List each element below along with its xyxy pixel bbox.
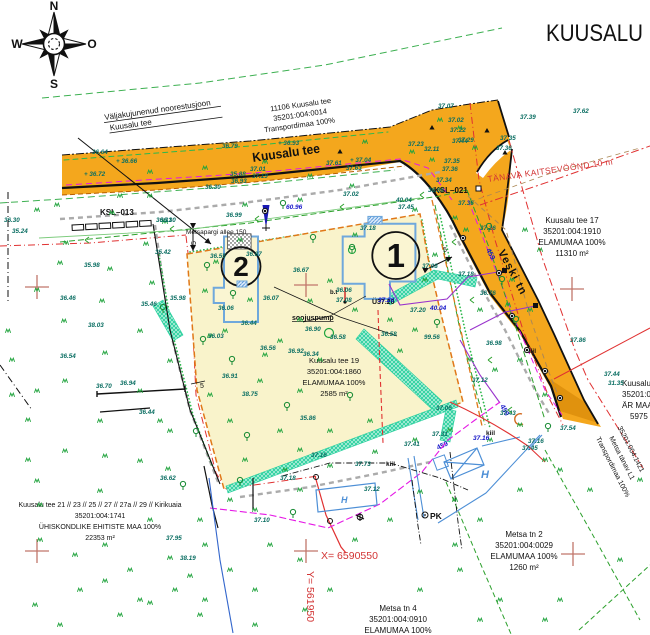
svg-text:S: S: [50, 77, 58, 91]
svg-text:37.16: 37.16: [473, 435, 490, 442]
svg-text:37.86: 37.86: [570, 337, 586, 344]
svg-text:37.22: 37.22: [450, 127, 466, 134]
svg-text:37.45: 37.45: [398, 204, 414, 211]
svg-text:W: W: [11, 37, 23, 51]
svg-text:36.76: 36.76: [480, 290, 496, 297]
svg-text:+ 36.93: + 36.93: [278, 140, 300, 147]
svg-text:37.23: 37.23: [408, 141, 424, 148]
svg-text:5: 5: [191, 241, 198, 245]
svg-text:36.91: 36.91: [222, 373, 238, 380]
svg-text:36.56: 36.56: [260, 345, 276, 352]
svg-text:35201:004: 35201:004: [622, 390, 650, 399]
svg-text:ÄR MAA 1: ÄR MAA 1: [622, 401, 650, 410]
svg-text:37.19: 37.19: [252, 173, 268, 180]
svg-text:37.73: 37.73: [355, 461, 371, 468]
svg-text:36.94: 36.94: [120, 380, 136, 387]
svg-text:36.93: 36.93: [231, 178, 247, 185]
svg-text:36.87: 36.87: [246, 251, 262, 258]
svg-text:H: H: [481, 469, 490, 481]
svg-text:11310 m²: 11310 m²: [555, 249, 589, 258]
svg-text:KSL–013: KSL–013: [100, 208, 134, 217]
svg-text:N: N: [50, 0, 59, 13]
svg-text:+ 37.04: + 37.04: [350, 157, 372, 164]
svg-text:37.08: 37.08: [422, 263, 438, 270]
svg-text:37.35: 37.35: [500, 135, 516, 142]
svg-text:2585 m²: 2585 m²: [320, 389, 348, 398]
svg-text:Y= 561950: Y= 561950: [304, 571, 316, 622]
svg-text:5975: 5975: [630, 412, 648, 421]
svg-text:37.18: 37.18: [458, 271, 474, 278]
svg-text:37.12: 37.12: [472, 377, 488, 384]
svg-text:35201:004:1860: 35201:004:1860: [307, 367, 361, 376]
svg-text:37.61: 37.61: [326, 160, 342, 167]
svg-text:37.20: 37.20: [410, 307, 426, 314]
svg-text:36.44: 36.44: [139, 409, 155, 416]
svg-text:ÜHISKONDLIKE EHITISTE MAA 100%: ÜHISKONDLIKE EHITISTE MAA 100%: [39, 523, 161, 531]
svg-text:37.35: 37.35: [444, 158, 460, 165]
svg-text:36.30: 36.30: [4, 217, 20, 224]
svg-text:37.36: 37.36: [442, 166, 458, 173]
svg-text:+ 36.66: + 36.66: [116, 158, 138, 165]
svg-text:36.92: 36.92: [288, 348, 304, 355]
svg-text:37.26: 37.26: [480, 225, 496, 232]
svg-text:38.03: 38.03: [88, 322, 104, 329]
svg-text:36.70: 36.70: [96, 383, 112, 390]
svg-text:5: 5: [443, 247, 447, 254]
svg-text:37.29: 37.29: [458, 137, 474, 144]
svg-text:36.58: 36.58: [381, 331, 397, 338]
svg-text:37.62: 37.62: [573, 108, 589, 115]
svg-text:35.42: 35.42: [155, 249, 171, 256]
svg-text:38.75: 38.75: [242, 391, 258, 398]
svg-text:35201:004:0910: 35201:004:0910: [369, 615, 427, 624]
svg-text:1: 1: [387, 237, 405, 274]
svg-text:37.36: 37.36: [458, 200, 474, 207]
svg-text:ELAMUMAA 100%: ELAMUMAA 100%: [364, 626, 431, 635]
svg-text:Kuusalu t: Kuusalu t: [622, 379, 650, 388]
svg-text:36.98: 36.98: [486, 340, 502, 347]
svg-text:37.34: 37.34: [436, 177, 452, 184]
svg-text:31.35: 31.35: [608, 380, 624, 387]
svg-text:22353 m²: 22353 m²: [85, 535, 115, 542]
svg-text:5: 5: [200, 383, 204, 390]
svg-text:37.39: 37.39: [520, 114, 536, 121]
svg-text:36.58: 36.58: [330, 334, 346, 341]
svg-text:35.98: 35.98: [84, 262, 100, 269]
svg-text:X= 6590550: X= 6590550: [321, 550, 378, 562]
svg-text:37.31: 37.31: [432, 431, 448, 438]
svg-text:37.18: 37.18: [280, 475, 296, 482]
svg-text:H: H: [341, 495, 348, 505]
svg-text:Metsapargi allee 150: Metsapargi allee 150: [186, 229, 247, 236]
svg-text:ELAMUMAA 100%: ELAMUMAA 100%: [490, 552, 557, 561]
svg-text:36.79: 36.79: [222, 143, 238, 150]
svg-text:36.99: 36.99: [226, 212, 242, 219]
svg-text:37.44: 37.44: [604, 371, 620, 378]
svg-text:37.07: 37.07: [438, 103, 454, 110]
svg-text:36.67: 36.67: [293, 267, 309, 274]
svg-text:ELAMUMAA 100%: ELAMUMAA 100%: [538, 238, 605, 247]
svg-text:Metsa tn 2: Metsa tn 2: [505, 530, 543, 539]
svg-text:36.31: 36.31: [156, 217, 172, 224]
svg-text:37.43: 37.43: [500, 410, 516, 417]
svg-text:kiil: kiil: [386, 461, 395, 468]
svg-text:36.96: 36.96: [428, 187, 444, 194]
svg-text:37.36: 37.36: [496, 145, 512, 152]
svg-text:+ 36.72: + 36.72: [84, 171, 106, 178]
svg-text:Metsa tn 4: Metsa tn 4: [379, 604, 417, 613]
svg-text:35201:004:1910: 35201:004:1910: [543, 227, 601, 236]
svg-text:37.06: 37.06: [436, 405, 452, 412]
svg-text:35201:004:0029: 35201:004:0029: [495, 541, 553, 550]
svg-text:37.12: 37.12: [364, 486, 380, 493]
svg-text:37.16: 37.16: [528, 438, 544, 445]
svg-text:1260 m²: 1260 m²: [509, 563, 539, 572]
svg-text:PK: PK: [430, 511, 443, 521]
svg-text:60.96: 60.96: [286, 204, 303, 211]
svg-text:37.41: 37.41: [404, 441, 420, 448]
svg-text:36.46: 36.46: [60, 295, 76, 302]
svg-text:KUUSALU: KUUSALU: [546, 20, 643, 47]
svg-text:37.63: 37.63: [346, 165, 362, 172]
svg-text:35.24: 35.24: [12, 228, 28, 235]
svg-text:36.64: 36.64: [92, 149, 108, 156]
svg-text:36.90: 36.90: [305, 326, 321, 333]
svg-text:O: O: [87, 37, 96, 51]
svg-text:Kuusalu tee 17: Kuusalu tee 17: [545, 216, 599, 225]
svg-text:37.54: 37.54: [560, 425, 576, 432]
svg-text:37.02: 37.02: [343, 191, 359, 198]
svg-text:36.62: 36.62: [160, 475, 176, 482]
svg-text:37.10: 37.10: [254, 517, 270, 524]
svg-text:36.07: 36.07: [263, 295, 279, 302]
svg-text:35.46: 35.46: [141, 301, 157, 308]
svg-text:40.04: 40.04: [395, 197, 412, 204]
svg-text:37.20: 37.20: [378, 297, 395, 304]
svg-text:36.03: 36.03: [208, 333, 224, 340]
svg-text:36.06: 36.06: [218, 305, 234, 312]
svg-text:38.19: 38.19: [180, 555, 196, 562]
svg-text:35.86: 35.86: [300, 415, 316, 422]
svg-text:35.98: 35.98: [170, 295, 186, 302]
svg-text:36.30: 36.30: [205, 184, 221, 191]
svg-text:35201:004:1741: 35201:004:1741: [75, 513, 126, 520]
svg-text:37.01: 37.01: [250, 166, 266, 173]
svg-text:37.02: 37.02: [448, 117, 464, 124]
svg-text:37.45: 37.45: [522, 445, 538, 452]
svg-text:37.18: 37.18: [360, 225, 376, 232]
svg-text:36.55: 36.55: [210, 253, 226, 260]
svg-text:Kuusalu tee 21 // 23 // 25 //: Kuusalu tee 21 // 23 // 25 // 27 // 27a …: [18, 502, 181, 509]
svg-text:99.56: 99.56: [424, 334, 440, 341]
svg-text:36.06: 36.06: [336, 287, 352, 294]
svg-text:32.11: 32.11: [424, 146, 440, 153]
svg-text:37.08: 37.08: [336, 297, 352, 304]
svg-text:35.88: 35.88: [230, 171, 246, 178]
svg-text:40.04: 40.04: [429, 305, 447, 312]
svg-text:36.34: 36.34: [303, 351, 319, 358]
svg-text:ELAMUMAA 100%: ELAMUMAA 100%: [303, 378, 366, 387]
svg-text:36.54: 36.54: [60, 353, 76, 360]
svg-text:36.44: 36.44: [241, 320, 257, 327]
svg-text:37.16: 37.16: [311, 452, 327, 459]
svg-text:37.95: 37.95: [166, 535, 182, 542]
